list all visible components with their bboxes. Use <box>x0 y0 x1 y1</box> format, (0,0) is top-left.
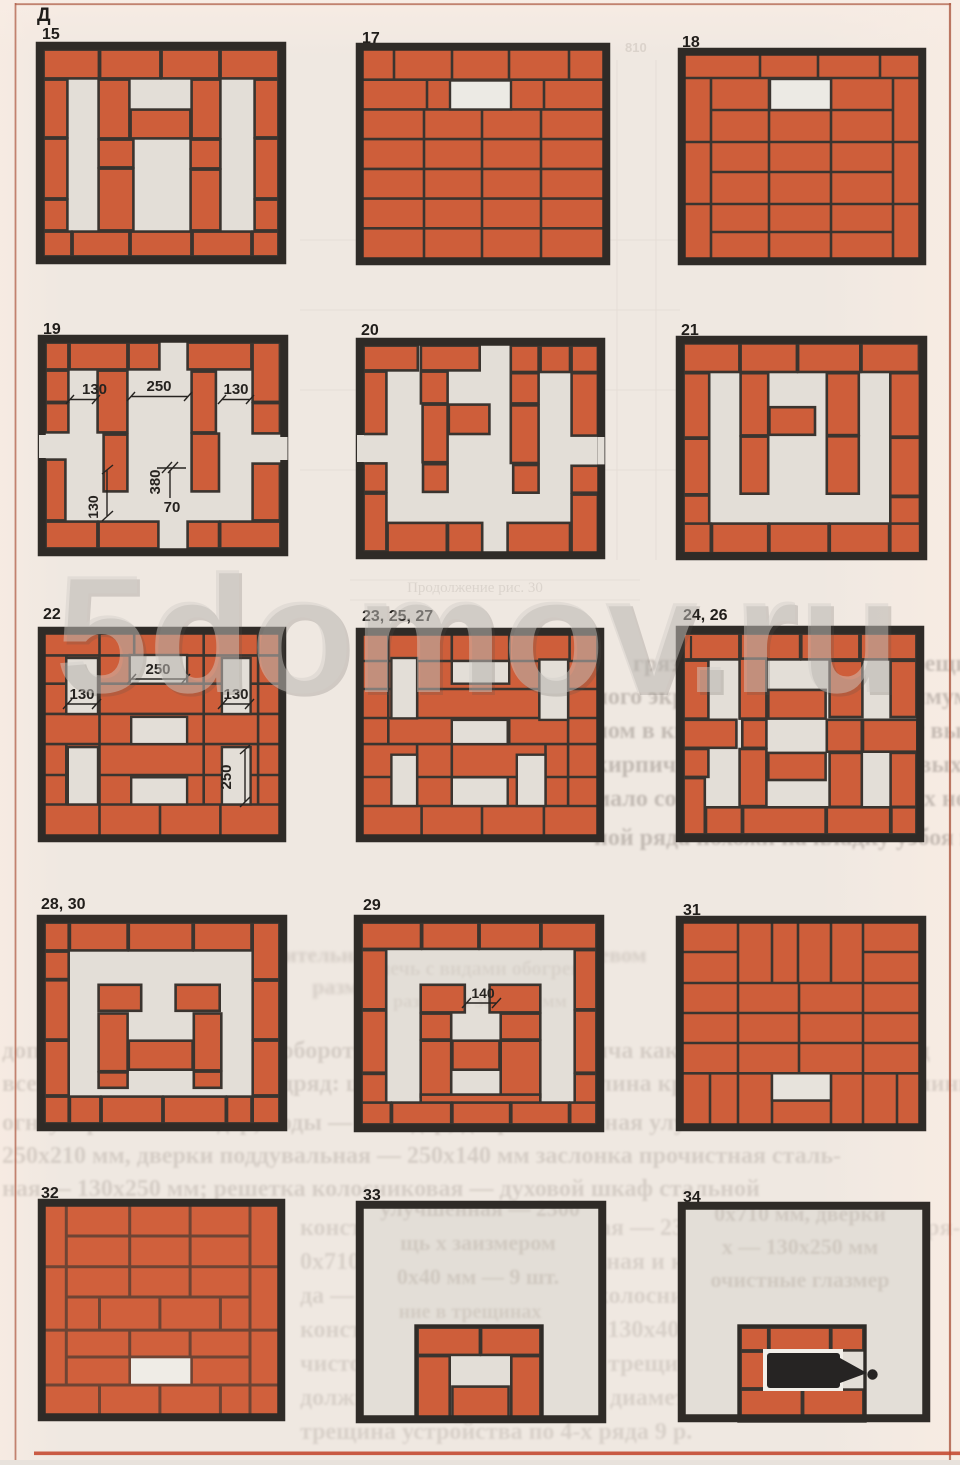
svg-text:15: 15 <box>42 26 60 43</box>
svg-text:очистные глазмер: очистные глазмер <box>711 1267 890 1292</box>
svg-text:130: 130 <box>223 381 248 398</box>
svg-text:810: 810 <box>625 40 647 55</box>
svg-text:250: 250 <box>146 378 171 395</box>
svg-text:70: 70 <box>164 499 181 516</box>
svg-text:печь с видами обогрев: печь с видами обогрев <box>379 958 582 980</box>
svg-text:20: 20 <box>361 322 379 339</box>
svg-text:х — 130х250 мм: х — 130х250 мм <box>722 1234 878 1259</box>
svg-text:29: 29 <box>363 897 381 914</box>
svg-text:130: 130 <box>82 381 107 398</box>
svg-text:28, 30: 28, 30 <box>41 896 86 913</box>
svg-text:380: 380 <box>147 469 164 494</box>
svg-text:130: 130 <box>85 495 101 519</box>
svg-text:ние в трещинах: ние в трещинах <box>399 1301 542 1323</box>
svg-text:250х210 мм, дверки поддувальна: 250х210 мм, дверки поддувальная — 250х14… <box>2 1143 841 1169</box>
svg-text:140: 140 <box>471 985 495 1001</box>
svg-text:Д: Д <box>37 5 51 26</box>
svg-text:щь х заизмером: щь х заизмером <box>400 1230 556 1255</box>
svg-text:5domov.ru: 5domov.ru <box>55 540 900 728</box>
svg-text:250: 250 <box>218 764 235 789</box>
svg-text:0х40 мм — 9 шт.: 0х40 мм — 9 шт. <box>397 1264 559 1289</box>
